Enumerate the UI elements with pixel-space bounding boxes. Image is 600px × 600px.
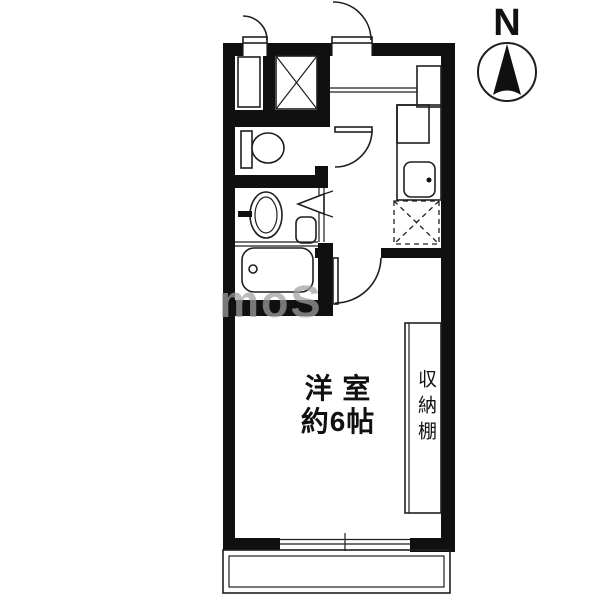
toilet-door (335, 127, 372, 167)
washbasin (238, 192, 282, 238)
balcony (223, 550, 450, 593)
compass: N (478, 2, 536, 101)
washer-space (296, 217, 316, 243)
watermark: moS (219, 276, 323, 328)
floor-plan: N 洋 室 約6帖 収納棚 moS (0, 0, 600, 600)
window (280, 533, 410, 551)
utility-closet (238, 57, 260, 107)
entrance-step (330, 88, 417, 92)
main-room-door (333, 258, 381, 304)
main-room-name: 洋 室 (258, 372, 418, 405)
folding-door (298, 191, 333, 217)
north-needle-icon (493, 44, 521, 95)
storage-shelf-label: 収納棚 (412, 369, 439, 529)
toilet (241, 131, 284, 168)
main-room-label: 洋 室 約6帖 (258, 372, 418, 438)
refrigerator-space (394, 201, 439, 244)
shoe-cabinet (417, 66, 441, 107)
kitchen-sink (404, 162, 435, 197)
pipe-shaft-x-box (276, 56, 317, 109)
main-room-size: 約6帖 (258, 405, 418, 438)
compass-north-label: N (493, 2, 520, 44)
